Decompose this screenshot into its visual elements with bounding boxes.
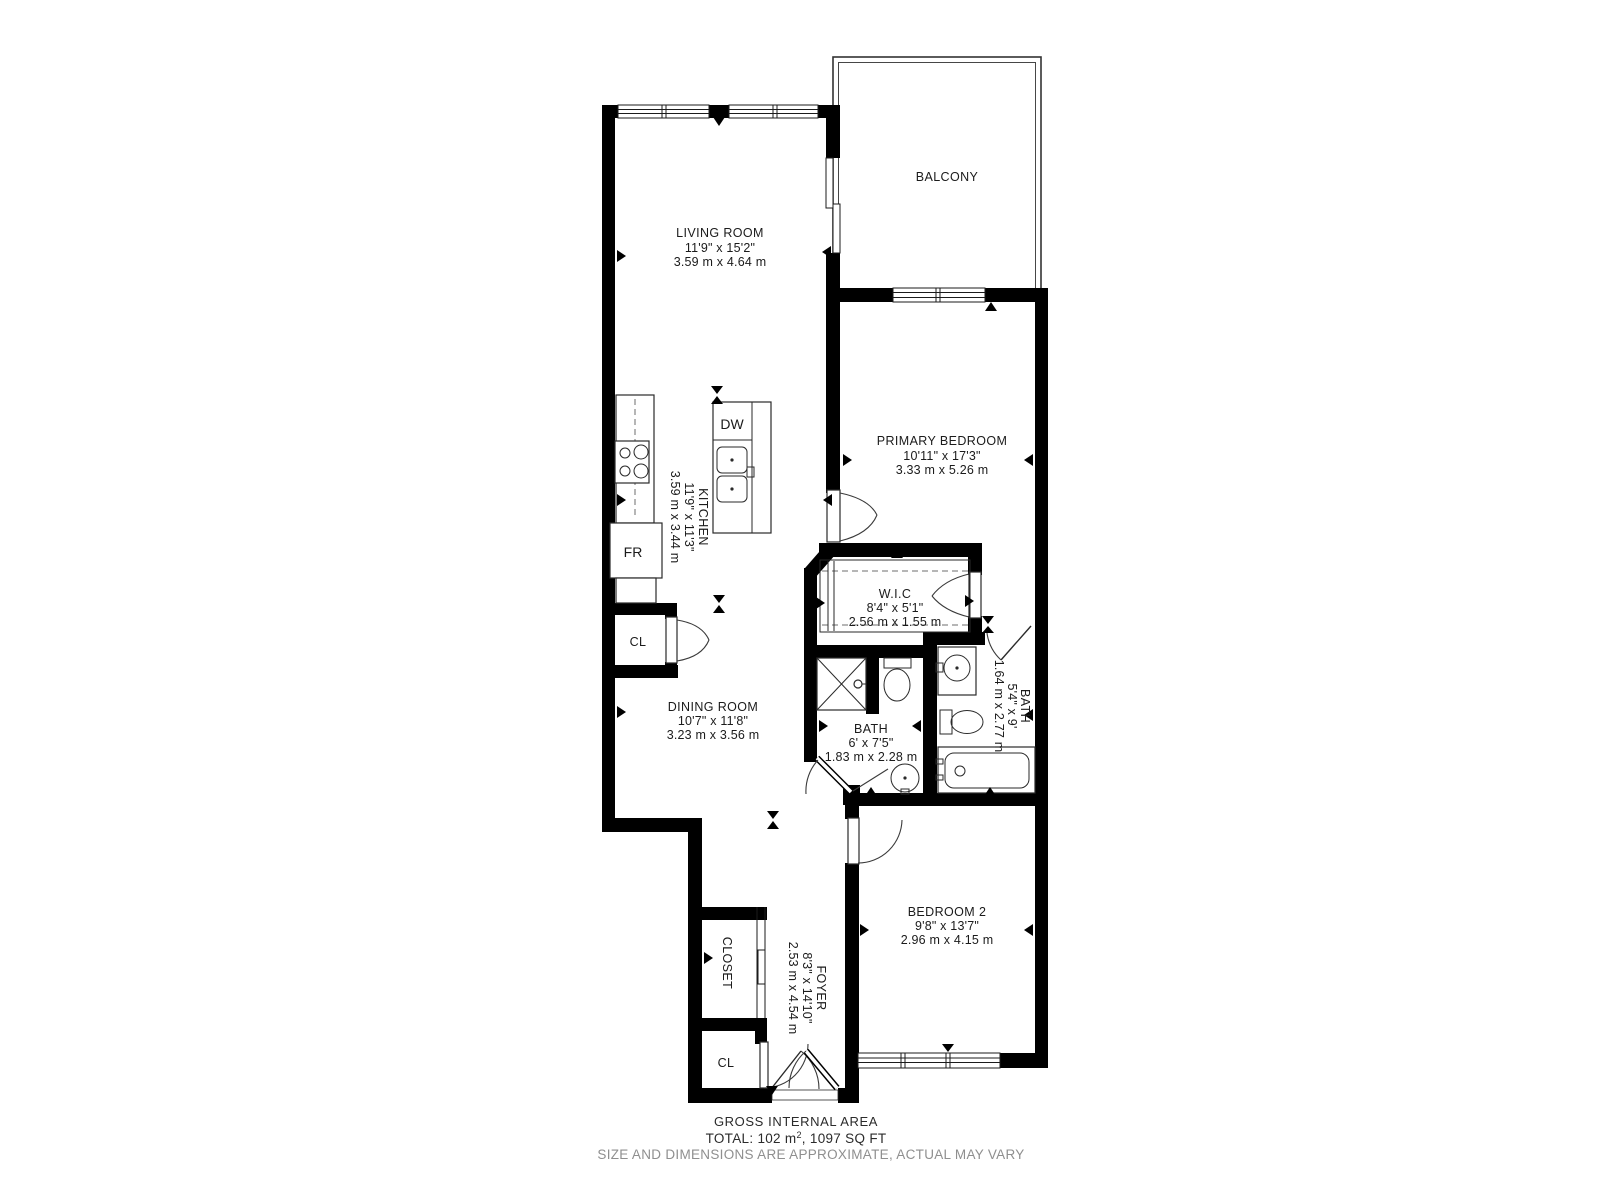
floor-plan: FR DW — [0, 0, 1600, 1200]
wic-door — [932, 572, 981, 618]
svg-text:W.I.C: W.I.C — [879, 587, 912, 601]
scan-marker — [713, 595, 725, 613]
svg-text:FOYER: FOYER — [814, 965, 828, 1010]
svg-text:3.59 m x 4.64 m: 3.59 m x 4.64 m — [674, 255, 767, 269]
entry-door — [771, 1051, 838, 1100]
svg-text:3.59 m x 3.44 m: 3.59 m x 3.44 m — [668, 471, 682, 564]
balcony-sliding-door — [826, 158, 840, 253]
closet-sliding-door — [757, 907, 765, 1018]
room-label-balcony: BALCONY — [916, 170, 979, 184]
scan-marker — [767, 811, 779, 829]
svg-text:9'8" x 13'7": 9'8" x 13'7" — [915, 919, 979, 933]
svg-text:11'9" x 15'2": 11'9" x 15'2" — [685, 241, 755, 255]
room-label-bath-ensuite: BATH 5'4" x 9' 1.64 m x 2.77 m — [992, 660, 1032, 753]
fridge-label: FR — [624, 544, 643, 560]
kitchen-closet-door — [666, 617, 709, 663]
svg-text:CLOSET: CLOSET — [720, 937, 734, 989]
svg-text:LIVING ROOM: LIVING ROOM — [676, 226, 764, 240]
svg-text:8'3" x 14'10": 8'3" x 14'10" — [800, 952, 814, 1023]
svg-text:5'4" x 9': 5'4" x 9' — [1005, 683, 1019, 728]
svg-text:KITCHEN: KITCHEN — [696, 488, 710, 546]
room-label-foyer: FOYER 8'3" x 14'10" 2.53 m x 4.54 m — [786, 942, 828, 1035]
vanity-sink-icon — [936, 647, 976, 695]
scan-marker — [982, 616, 994, 633]
room-label-cl-foyer: CL — [718, 1056, 735, 1070]
ensuite-bath-door — [987, 626, 1031, 660]
svg-text:DINING ROOM: DINING ROOM — [668, 700, 759, 714]
room-label-bath: BATH 6' x 7'5" 1.83 m x 2.28 m — [825, 722, 918, 764]
svg-text:10'7" x 11'8": 10'7" x 11'8" — [678, 714, 748, 728]
svg-text:BATH: BATH — [854, 722, 888, 736]
island-counter: DW — [713, 402, 771, 533]
room-label-wic: W.I.C 8'4" x 5'1" 2.56 m x 1.55 m — [849, 587, 942, 629]
footer: GROSS INTERNAL AREA TOTAL: 102 m2, 1097 … — [597, 1114, 1024, 1162]
svg-text:PRIMARY BEDROOM: PRIMARY BEDROOM — [877, 434, 1008, 448]
room-label-closet: CLOSET — [720, 937, 734, 989]
footer-disclaimer: SIZE AND DIMENSIONS ARE APPROXIMATE, ACT… — [597, 1147, 1024, 1162]
svg-text:BEDROOM 2: BEDROOM 2 — [908, 905, 987, 919]
floor-plan-page: FR DW — [0, 0, 1600, 1200]
room-label-living-room: LIVING ROOM 11'9" x 15'2" 3.59 m x 4.64 … — [674, 226, 767, 269]
sink-icon — [891, 764, 919, 794]
svg-text:1.83 m x 2.28 m: 1.83 m x 2.28 m — [825, 750, 918, 764]
stove-icon — [615, 441, 649, 483]
bedroom2-window — [858, 1053, 1000, 1068]
svg-text:BATH: BATH — [1018, 689, 1032, 723]
foyer-closet-door — [760, 1042, 808, 1088]
primary-bedroom-window — [893, 288, 985, 302]
svg-text:2.96 m x 4.15 m: 2.96 m x 4.15 m — [901, 933, 994, 947]
dishwasher-label: DW — [720, 416, 744, 432]
primary-bedroom-door — [827, 490, 877, 542]
room-label-bedroom2: BEDROOM 2 9'8" x 13'7" 2.96 m x 4.15 m — [901, 905, 994, 947]
room-label-primary-bedroom: PRIMARY BEDROOM 10'11" x 17'3" 3.33 m x … — [877, 434, 1008, 477]
fridge: FR — [610, 523, 662, 578]
footer-total: TOTAL: 102 m2, 1097 SQ FT — [706, 1130, 887, 1146]
room-label-kitchen: KITCHEN 11'9" x 11'3" 3.59 m x 3.44 m — [668, 471, 710, 564]
svg-text:6' x 7'5": 6' x 7'5" — [848, 736, 893, 750]
bathtub-icon — [936, 747, 1035, 793]
footer-gross-area: GROSS INTERNAL AREA — [714, 1114, 878, 1129]
svg-text:11'9" x 11'3": 11'9" x 11'3" — [682, 482, 696, 551]
kitchen-counter-lower — [616, 578, 656, 603]
shower-icon — [817, 658, 866, 710]
room-label-cl-kitchen: CL — [630, 635, 647, 649]
svg-text:1.64 m x 2.77 m: 1.64 m x 2.77 m — [992, 660, 1006, 753]
svg-text:3.23 m x 3.56 m: 3.23 m x 3.56 m — [667, 728, 760, 742]
scan-marker — [711, 386, 723, 404]
bedroom2-door — [848, 818, 902, 864]
svg-text:3.33 m x 5.26 m: 3.33 m x 5.26 m — [896, 463, 989, 477]
svg-text:8'4" x 5'1": 8'4" x 5'1" — [867, 601, 924, 615]
room-label-dining-room: DINING ROOM 10'7" x 11'8" 3.23 m x 3.56 … — [667, 700, 760, 742]
svg-text:10'11" x 17'3": 10'11" x 17'3" — [903, 449, 980, 463]
svg-text:2.53 m x 4.54 m: 2.53 m x 4.54 m — [786, 942, 800, 1035]
toilet-icon-2 — [940, 710, 983, 734]
marker-window-living — [713, 117, 725, 126]
svg-text:2.56 m x 1.55 m: 2.56 m x 1.55 m — [849, 615, 942, 629]
toilet-icon — [884, 658, 911, 701]
